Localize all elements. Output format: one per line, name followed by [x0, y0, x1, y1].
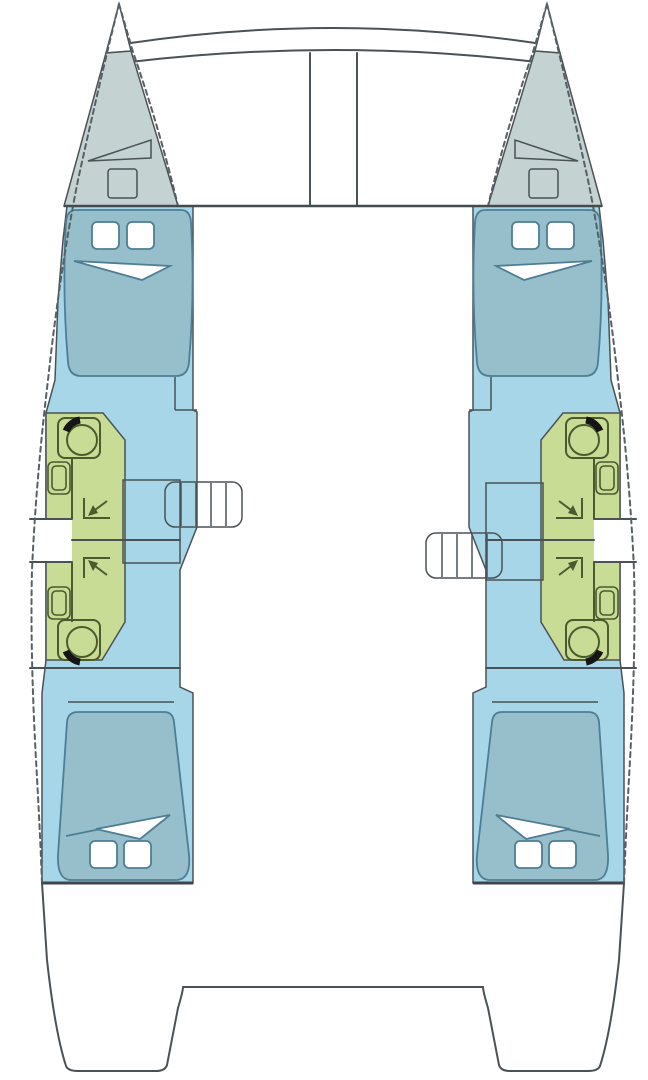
forward-crossbeam: [124, 28, 542, 44]
bow-beam-assembly: [124, 28, 542, 206]
starboard-aft-pillow-right: [549, 841, 576, 868]
lower-crossbeam: [130, 50, 536, 62]
port-aft-pillow-left: [90, 841, 117, 868]
port-forward-pillow-left: [92, 222, 119, 249]
port-hull: [30, 4, 242, 1071]
starboard-forward-pillow-right: [547, 222, 574, 249]
catamaran-floor-plan: [0, 0, 648, 1080]
starboard-side-gate: [594, 519, 633, 562]
port-foredeck: [64, 51, 178, 206]
deck-plan-svg: [0, 0, 648, 1080]
port-stern-outline: [42, 883, 183, 1071]
port-bow-deck: [106, 4, 131, 53]
starboard-foredeck: [488, 51, 602, 206]
port-forward-pillow-right: [127, 222, 154, 249]
starboard-stern-outline: [483, 883, 624, 1071]
starboard-forward-pillow-left: [512, 222, 539, 249]
starboard-hull: [426, 4, 636, 1071]
port-aft-pillow-right: [124, 841, 151, 868]
starboard-bow-deck: [535, 4, 560, 53]
starboard-aft-pillow-left: [515, 841, 542, 868]
port-side-gate: [33, 519, 72, 562]
